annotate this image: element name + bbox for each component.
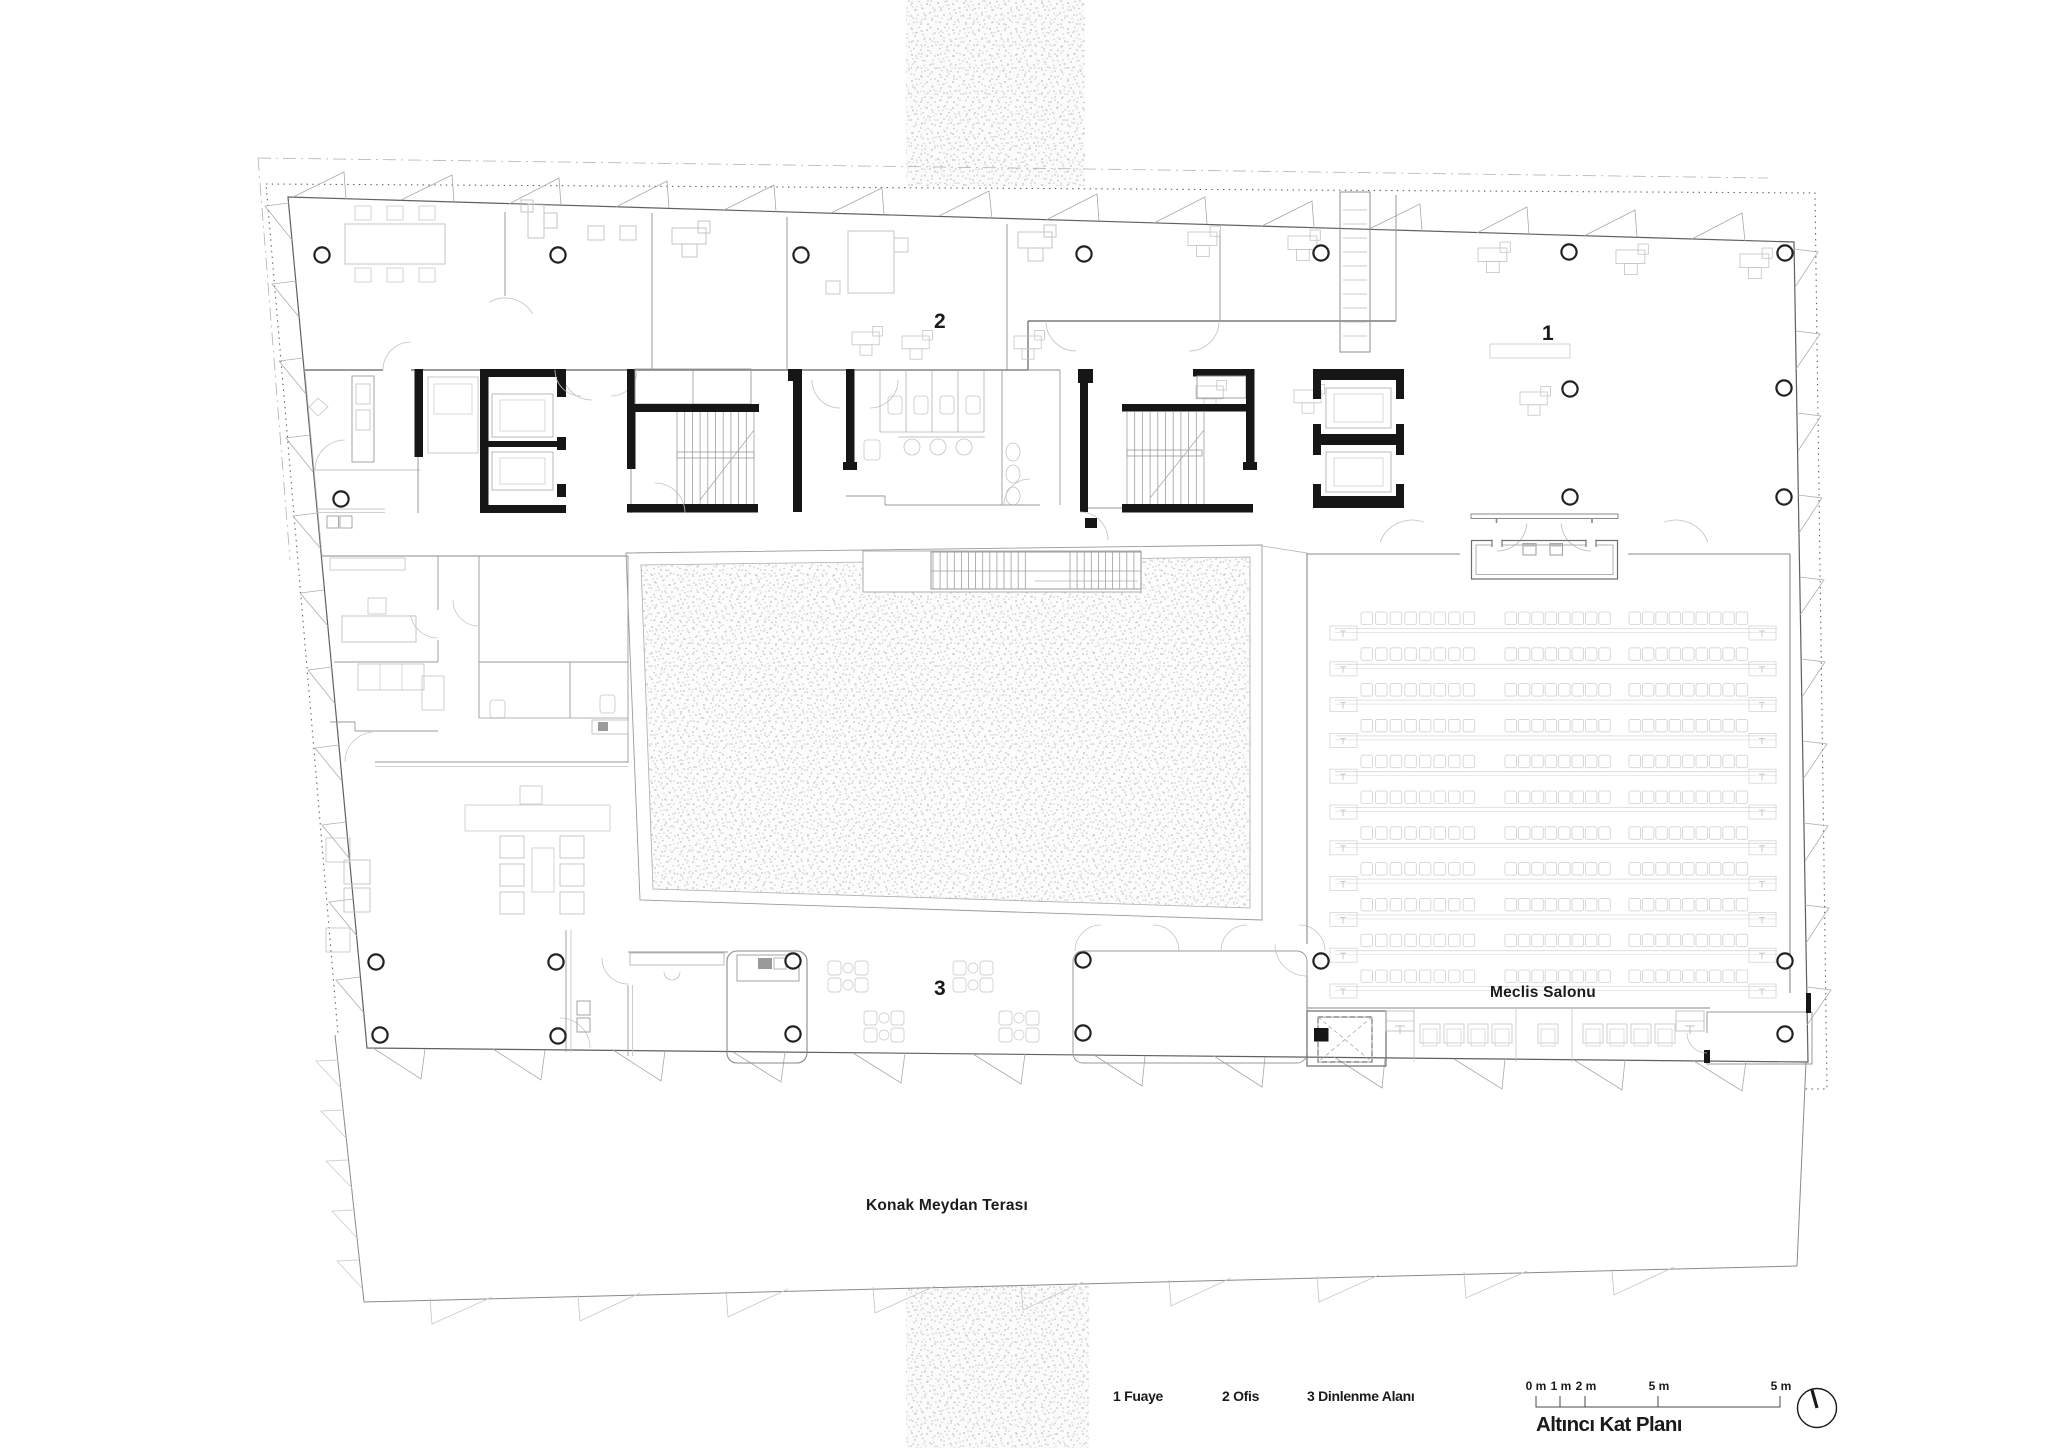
svg-text:Altıncı Kat Planı: Altıncı Kat Planı (1536, 1413, 1682, 1436)
svg-text:5 m: 5 m (1771, 1379, 1792, 1393)
svg-text:2 m: 2 m (1576, 1379, 1597, 1393)
svg-text:3: 3 (934, 977, 946, 1000)
svg-text:Konak Meydan Terası: Konak Meydan Terası (866, 1197, 1028, 1214)
svg-text:0 m: 0 m (1526, 1379, 1547, 1393)
svg-text:2 Ofis: 2 Ofis (1222, 1388, 1260, 1404)
svg-text:2: 2 (934, 310, 946, 333)
svg-text:1 m: 1 m (1551, 1379, 1572, 1393)
svg-text:5 m: 5 m (1649, 1379, 1670, 1393)
svg-text:Meclis Salonu: Meclis Salonu (1490, 984, 1596, 1001)
svg-text:1 Fuaye: 1 Fuaye (1113, 1388, 1164, 1404)
svg-text:3 Dinlenme Alanı: 3 Dinlenme Alanı (1307, 1388, 1415, 1404)
svg-text:1: 1 (1542, 322, 1554, 345)
